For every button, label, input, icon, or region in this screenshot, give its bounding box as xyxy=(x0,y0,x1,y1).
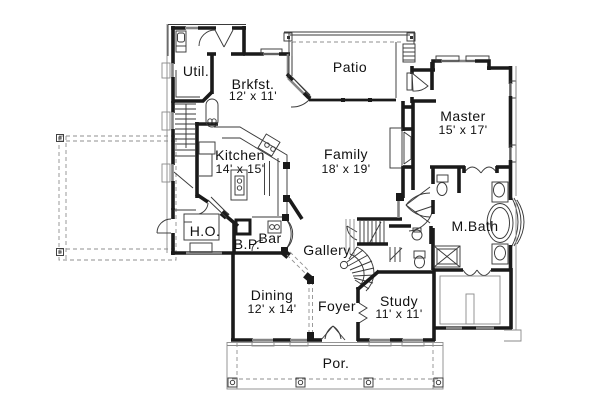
svg-text:Bar: Bar xyxy=(258,230,281,246)
svg-text:M.Bath: M.Bath xyxy=(451,218,498,234)
svg-text:12' x 11': 12' x 11' xyxy=(229,89,277,103)
svg-text:Gallery: Gallery xyxy=(303,242,351,258)
svg-text:Kitchen: Kitchen xyxy=(215,147,265,163)
svg-text:14' x 15': 14' x 15' xyxy=(215,162,264,176)
svg-text:H.O.: H.O. xyxy=(190,223,221,239)
svg-text:12' x 14': 12' x 14' xyxy=(247,302,296,316)
svg-text:Foyer: Foyer xyxy=(318,298,356,314)
svg-text:B.P.: B.P. xyxy=(234,236,260,252)
svg-text:11' x 11': 11' x 11' xyxy=(375,307,422,321)
svg-text:Family: Family xyxy=(324,146,368,162)
svg-text:Por.: Por. xyxy=(323,355,350,371)
svg-text:Util.: Util. xyxy=(183,63,209,79)
svg-text:Dining: Dining xyxy=(251,287,293,303)
svg-text:Master: Master xyxy=(440,108,486,124)
svg-text:15' x 17': 15' x 17' xyxy=(438,123,487,137)
svg-text:Patio: Patio xyxy=(333,59,367,75)
svg-text:18' x 19': 18' x 19' xyxy=(321,162,370,176)
